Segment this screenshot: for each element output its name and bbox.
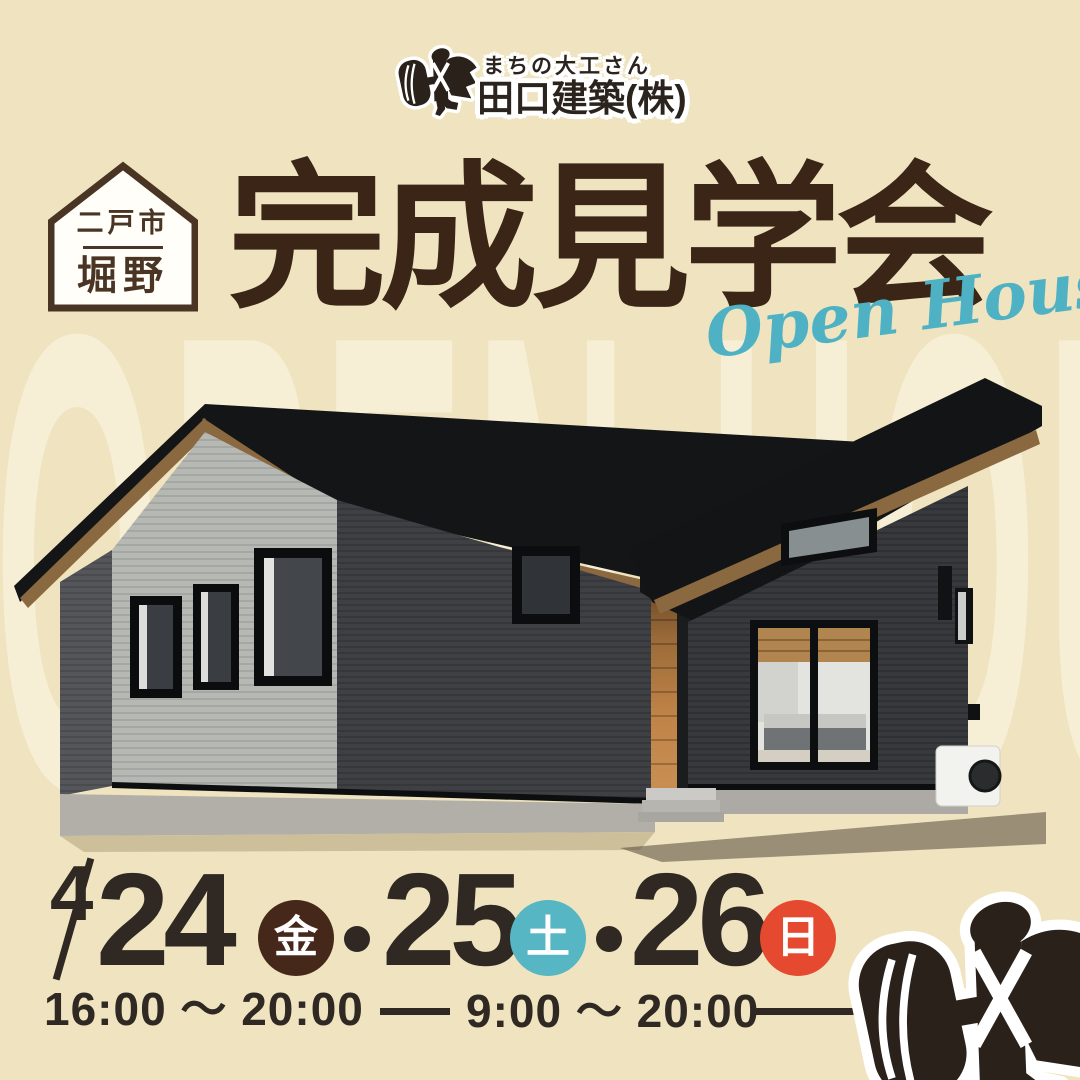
small-window-2 xyxy=(955,588,973,644)
badge-city: 二戸市 xyxy=(48,210,198,237)
front-window-3 xyxy=(254,548,332,686)
date-separator-dot xyxy=(344,926,370,952)
badge-district: 堀野 xyxy=(48,256,198,296)
brand-tagline: まちの大工さん xyxy=(483,56,651,77)
date-separator-dot xyxy=(596,926,622,952)
weekday-badge-sunday: 日 xyxy=(760,900,836,976)
vent xyxy=(968,704,980,720)
heat-pump-unit xyxy=(936,746,1000,806)
time-dash-left xyxy=(380,1008,450,1015)
day-26: 26 xyxy=(630,854,765,986)
front-window-1 xyxy=(130,596,182,698)
location-badge: 二戸市 堀野 xyxy=(48,160,198,312)
badge-divider xyxy=(83,246,163,249)
time-range-friday: 16:00 ～ 20:00 xyxy=(44,986,364,1032)
time-range-weekend: 9:00 ～ 20:00 xyxy=(466,988,759,1034)
day-24: 24 xyxy=(96,854,231,986)
entry-steps xyxy=(638,788,724,822)
carpenter-mascot-silhouette xyxy=(830,884,1080,1080)
sliding-glass-door xyxy=(750,620,878,770)
weekday-badge-saturday: 土 xyxy=(510,900,586,976)
side-window xyxy=(512,546,580,624)
carpenter-mascot-icon xyxy=(390,42,482,124)
foundation-right xyxy=(688,790,968,814)
weekday-badge-friday: 金 xyxy=(258,900,334,976)
day-25: 25 xyxy=(382,854,517,986)
flyer-canvas: OPEN HOUSE xyxy=(0,0,1080,1080)
brand-company-name: 田口建築(株) xyxy=(477,80,687,117)
front-window-2 xyxy=(193,584,239,690)
small-window-1 xyxy=(938,566,952,620)
